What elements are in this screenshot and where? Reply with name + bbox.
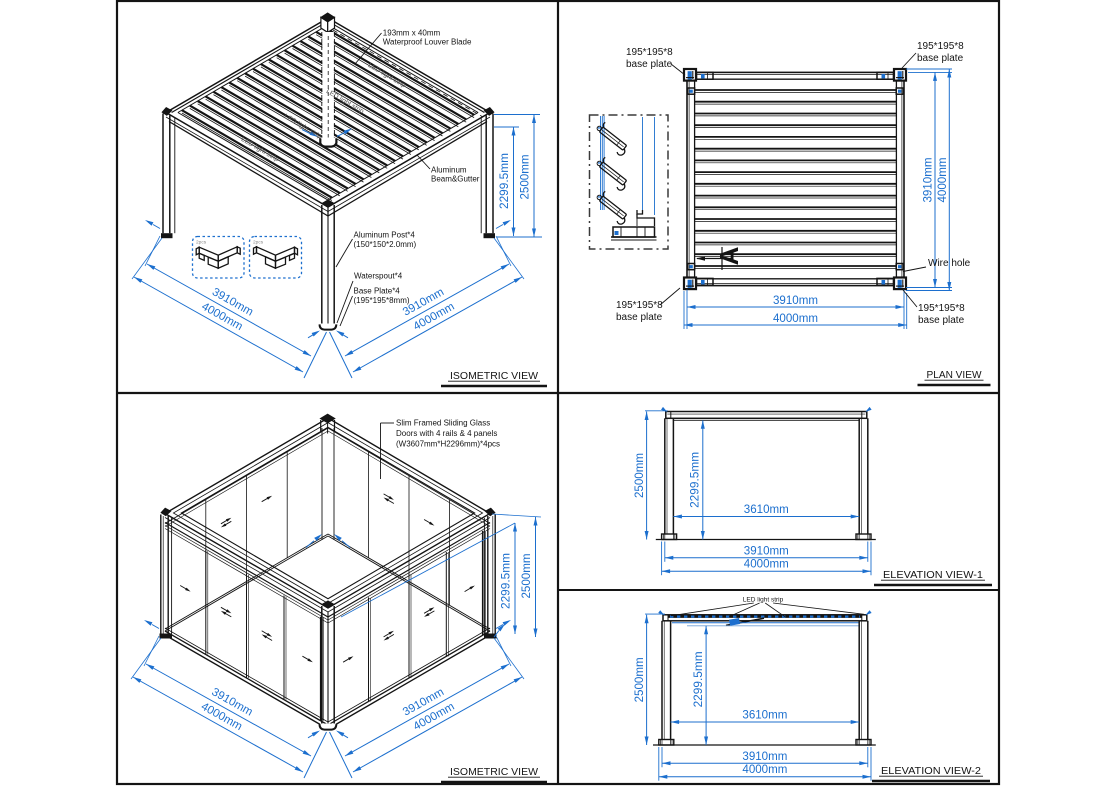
svg-text:ISOMETRIC VIEW: ISOMETRIC VIEW bbox=[450, 371, 539, 382]
svg-text:ELEVATION VIEW-1: ELEVATION VIEW-1 bbox=[883, 570, 983, 581]
svg-text:2pcs: 2pcs bbox=[253, 240, 264, 246]
svg-text:3910mm: 3910mm bbox=[773, 295, 818, 307]
svg-text:3910mm: 3910mm bbox=[742, 751, 787, 763]
svg-text:193mm x 40mm: 193mm x 40mm bbox=[383, 29, 441, 38]
svg-text:(W3607mm*H2296mm)*4pcs: (W3607mm*H2296mm)*4pcs bbox=[396, 440, 500, 449]
svg-text:Waterproof Louver Blade: Waterproof Louver Blade bbox=[383, 37, 472, 46]
svg-text:4000mm: 4000mm bbox=[744, 559, 789, 571]
svg-text:base plate: base plate bbox=[626, 59, 673, 70]
svg-text:3610mm: 3610mm bbox=[744, 504, 789, 516]
svg-text:4000mm: 4000mm bbox=[742, 764, 787, 776]
svg-text:4000mm: 4000mm bbox=[773, 313, 818, 325]
svg-text:base plate: base plate bbox=[918, 315, 965, 326]
svg-text:base plate: base plate bbox=[616, 312, 663, 323]
svg-text:Aluminum Post*4: Aluminum Post*4 bbox=[354, 231, 416, 240]
svg-text:Waterspout*4: Waterspout*4 bbox=[354, 272, 403, 281]
svg-text:PLAN VIEW: PLAN VIEW bbox=[927, 370, 983, 381]
svg-text:3910mm: 3910mm bbox=[923, 158, 935, 203]
svg-text:195*195*8: 195*195*8 bbox=[626, 47, 673, 58]
svg-text:Beam&Gutter: Beam&Gutter bbox=[431, 175, 480, 184]
svg-text:3610mm: 3610mm bbox=[742, 710, 787, 722]
svg-text:3910mm: 3910mm bbox=[744, 545, 789, 557]
svg-text:195*195*8: 195*195*8 bbox=[917, 41, 964, 52]
svg-text:2500mm: 2500mm bbox=[634, 453, 646, 498]
svg-text:2500mm: 2500mm bbox=[634, 657, 646, 702]
svg-text:ELEVATION VIEW-2: ELEVATION VIEW-2 bbox=[881, 766, 981, 777]
svg-text:2500mm: 2500mm bbox=[521, 554, 533, 599]
svg-text:4000mm: 4000mm bbox=[937, 158, 949, 203]
svg-text:ISOMETRIC VIEW: ISOMETRIC VIEW bbox=[450, 767, 539, 778]
svg-text:2299.5mm: 2299.5mm bbox=[693, 651, 705, 707]
svg-text:2500mm: 2500mm bbox=[520, 155, 532, 200]
svg-text:A: A bbox=[714, 246, 744, 265]
svg-text:Slim Framed Sliding Glass: Slim Framed Sliding Glass bbox=[396, 419, 490, 428]
svg-text:(195*195*8mm): (195*195*8mm) bbox=[354, 296, 410, 305]
svg-text:Wire hole: Wire hole bbox=[928, 258, 971, 269]
svg-text:Aluminum: Aluminum bbox=[431, 166, 467, 175]
svg-text:Doors with 4 rails & 4 panels: Doors with 4 rails & 4 panels bbox=[396, 429, 497, 438]
svg-text:2299.5mm: 2299.5mm bbox=[690, 452, 702, 508]
svg-text:195*195*8: 195*195*8 bbox=[616, 300, 663, 311]
svg-text:LED light strip: LED light strip bbox=[743, 597, 784, 604]
svg-text:Base Plate*4: Base Plate*4 bbox=[354, 287, 401, 296]
svg-text:base plate: base plate bbox=[917, 53, 964, 64]
svg-text:(150*150*2.0mm): (150*150*2.0mm) bbox=[354, 240, 417, 249]
svg-text:2299.5mm: 2299.5mm bbox=[501, 553, 513, 609]
svg-text:195*195*8: 195*195*8 bbox=[918, 303, 965, 314]
svg-text:2299.5mm: 2299.5mm bbox=[499, 153, 511, 209]
svg-text:2pcs: 2pcs bbox=[196, 240, 207, 246]
